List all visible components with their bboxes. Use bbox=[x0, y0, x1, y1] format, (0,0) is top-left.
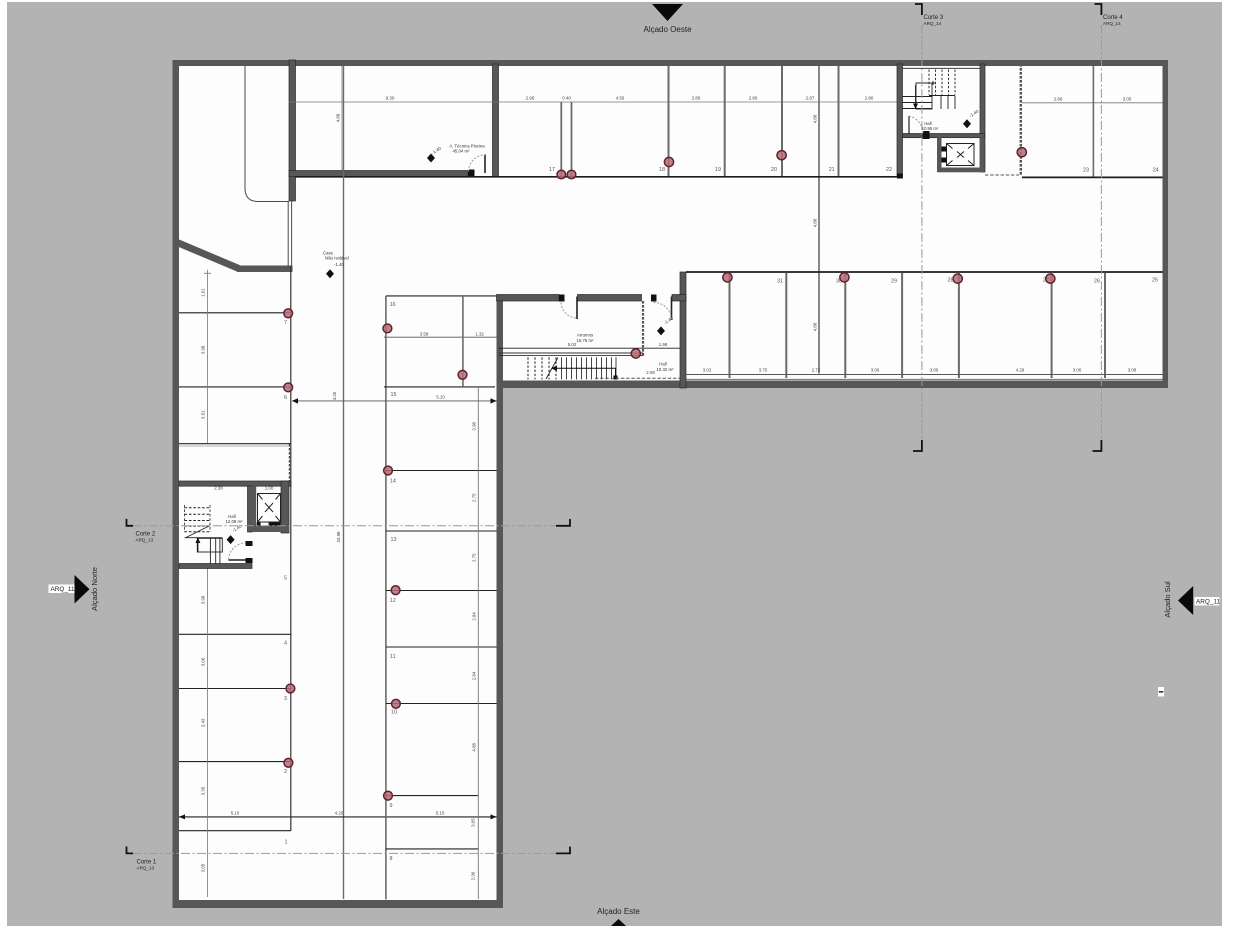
svg-text:3.35: 3.35 bbox=[201, 786, 206, 795]
svg-text:23: 23 bbox=[1083, 168, 1089, 174]
svg-text:4.88: 4.88 bbox=[336, 113, 341, 122]
svg-text:4.88: 4.88 bbox=[813, 322, 818, 331]
svg-text:4.56: 4.56 bbox=[616, 96, 625, 101]
svg-text:Alçado Norte: Alçado Norte bbox=[90, 567, 99, 611]
svg-text:5: 5 bbox=[284, 576, 287, 582]
svg-text:12: 12 bbox=[390, 598, 396, 604]
svg-text:3.05: 3.05 bbox=[201, 863, 206, 872]
svg-text:2.84: 2.84 bbox=[472, 671, 477, 680]
svg-text:4.29: 4.29 bbox=[1016, 368, 1025, 373]
svg-text:22: 22 bbox=[886, 167, 892, 173]
svg-text:-1.40: -1.40 bbox=[334, 262, 345, 267]
svg-text:5.10: 5.10 bbox=[231, 811, 240, 816]
svg-text:2.86: 2.86 bbox=[865, 96, 874, 101]
svg-text:2: 2 bbox=[284, 769, 287, 775]
svg-text:1: 1 bbox=[285, 840, 288, 846]
svg-text:ARQ_14: ARQ_14 bbox=[924, 21, 942, 26]
svg-text:45.04 m²: 45.04 m² bbox=[453, 149, 471, 154]
svg-text:ARQ_11: ARQ_11 bbox=[51, 586, 75, 593]
svg-text:5.10: 5.10 bbox=[436, 394, 445, 399]
svg-text:2.96: 2.96 bbox=[471, 871, 476, 880]
svg-text:2.96: 2.96 bbox=[526, 96, 535, 101]
svg-text:3.51: 3.51 bbox=[201, 410, 206, 419]
svg-text:Alçado Este: Alçado Este bbox=[597, 907, 640, 916]
svg-text:1.00: 1.00 bbox=[265, 486, 274, 491]
svg-text:18: 18 bbox=[659, 167, 665, 173]
svg-text:ARQ_13: ARQ_13 bbox=[137, 866, 155, 871]
svg-text:16: 16 bbox=[390, 302, 396, 308]
svg-text:11: 11 bbox=[390, 654, 396, 660]
svg-text:20: 20 bbox=[771, 167, 777, 173]
svg-text:15.75 m²: 15.75 m² bbox=[577, 338, 595, 343]
svg-text:33.98: 33.98 bbox=[336, 531, 341, 543]
svg-text:25: 25 bbox=[1152, 278, 1158, 284]
svg-text:Alçado Sul: Alçado Sul bbox=[1163, 581, 1172, 618]
svg-text:9.30: 9.30 bbox=[386, 96, 395, 101]
svg-text:4.88: 4.88 bbox=[813, 114, 818, 123]
svg-text:2.08: 2.08 bbox=[646, 370, 655, 375]
svg-text:19: 19 bbox=[715, 167, 721, 173]
svg-text:29: 29 bbox=[891, 279, 897, 285]
svg-text:0.40: 0.40 bbox=[562, 96, 571, 101]
svg-text:2.36: 2.36 bbox=[214, 486, 223, 491]
svg-text:12.08 m²: 12.08 m² bbox=[226, 519, 244, 524]
svg-text:3.08: 3.08 bbox=[1128, 368, 1137, 373]
svg-text:7: 7 bbox=[284, 320, 287, 326]
svg-text:15: 15 bbox=[391, 392, 397, 398]
svg-text:2.86: 2.86 bbox=[1054, 96, 1063, 101]
svg-text:1.61: 1.61 bbox=[201, 288, 206, 297]
svg-text:10.95 m²: 10.95 m² bbox=[922, 126, 939, 131]
svg-text:2.86: 2.86 bbox=[749, 96, 758, 101]
svg-text:ARQ_11: ARQ_11 bbox=[1196, 599, 1220, 606]
svg-text:24: 24 bbox=[1153, 168, 1159, 174]
svg-text:2.84: 2.84 bbox=[472, 612, 477, 621]
svg-text:4: 4 bbox=[284, 641, 287, 647]
svg-text:9: 9 bbox=[390, 803, 393, 809]
svg-text:4.88: 4.88 bbox=[472, 742, 477, 751]
svg-text:3.98: 3.98 bbox=[201, 595, 206, 604]
svg-text:3.06: 3.06 bbox=[871, 368, 880, 373]
svg-text:Não Isolável: Não Isolável bbox=[325, 256, 349, 261]
svg-text:2.86: 2.86 bbox=[692, 96, 701, 101]
svg-text:Arrumos: Arrumos bbox=[577, 333, 593, 338]
svg-text:ARQ_14: ARQ_14 bbox=[1103, 21, 1121, 26]
svg-text:3.58: 3.58 bbox=[420, 331, 429, 336]
svg-text:5.02: 5.02 bbox=[568, 342, 577, 347]
svg-text:2.87: 2.87 bbox=[806, 96, 815, 101]
svg-text:2.75: 2.75 bbox=[472, 553, 477, 562]
svg-text:6: 6 bbox=[284, 395, 287, 401]
svg-text:5.10: 5.10 bbox=[436, 811, 445, 816]
svg-text:31: 31 bbox=[777, 279, 783, 285]
svg-text:1.98: 1.98 bbox=[659, 342, 668, 347]
svg-text:3.98: 3.98 bbox=[472, 421, 477, 430]
svg-text:3.02: 3.02 bbox=[703, 368, 712, 373]
svg-text:Alçado Oeste: Alçado Oeste bbox=[643, 25, 692, 34]
svg-text:4.20: 4.20 bbox=[332, 391, 337, 400]
svg-text:3.98: 3.98 bbox=[201, 345, 206, 354]
svg-text:3.06: 3.06 bbox=[1073, 368, 1082, 373]
svg-text:8: 8 bbox=[390, 856, 393, 862]
svg-text:4.88: 4.88 bbox=[813, 218, 818, 227]
svg-text:21: 21 bbox=[829, 167, 835, 173]
svg-text:2.75: 2.75 bbox=[472, 493, 477, 502]
svg-text:14: 14 bbox=[390, 479, 396, 485]
svg-text:17: 17 bbox=[549, 167, 555, 173]
svg-text:3: 3 bbox=[284, 696, 287, 702]
svg-text:4.20: 4.20 bbox=[335, 811, 344, 816]
svg-text:3.43: 3.43 bbox=[201, 718, 206, 727]
svg-text:1.32: 1.32 bbox=[475, 331, 484, 336]
svg-text:ARQ_13: ARQ_13 bbox=[136, 538, 154, 543]
svg-text:3.05: 3.05 bbox=[1123, 96, 1132, 101]
svg-text:Hall: Hall bbox=[659, 362, 666, 367]
svg-text:2.72: 2.72 bbox=[812, 368, 821, 373]
svg-text:3.06: 3.06 bbox=[930, 368, 939, 373]
svg-text:3.05: 3.05 bbox=[471, 818, 476, 827]
svg-text:13: 13 bbox=[391, 537, 397, 543]
svg-text:26: 26 bbox=[1094, 279, 1100, 285]
svg-text:3.06: 3.06 bbox=[201, 657, 206, 666]
svg-text:10.32 m²: 10.32 m² bbox=[657, 367, 675, 372]
svg-text:3.75: 3.75 bbox=[759, 368, 768, 373]
svg-text:10: 10 bbox=[391, 710, 397, 716]
